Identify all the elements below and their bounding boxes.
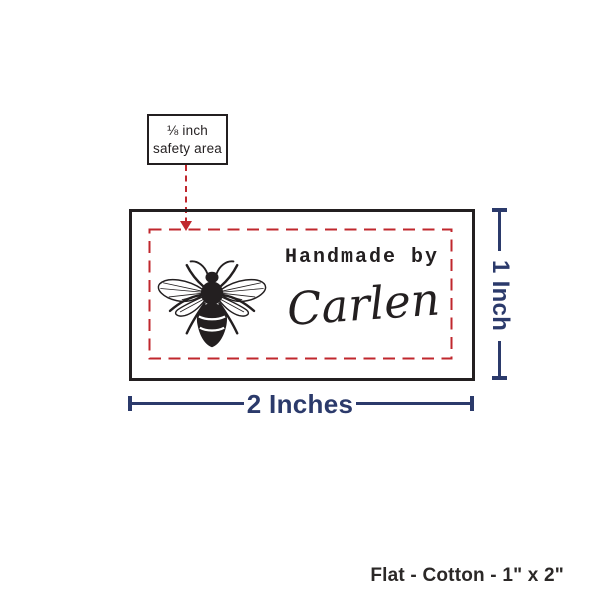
- label-name-text: Carlen: [285, 271, 434, 339]
- callout-text-line1: ⅛ inch: [167, 122, 208, 139]
- height-dimension-text: 1 Inch: [486, 260, 514, 331]
- callout-text-line2: safety area: [153, 140, 222, 157]
- safety-area-callout: ⅛ inch safety area: [147, 114, 228, 165]
- height-dimension-cap-top: [492, 208, 507, 212]
- height-dimension-label: 1 Inch: [483, 251, 517, 341]
- width-dimension-cap-right: [470, 396, 474, 411]
- width-dimension-label: 2 Inches: [244, 386, 356, 422]
- label-brand-text: Handmade by: [272, 246, 452, 269]
- product-spec-text: Flat - Cotton - 1" x 2": [370, 565, 564, 587]
- width-dimension-cap-left: [128, 396, 132, 411]
- label-mockup-canvas: ⅛ inch safety area: [0, 0, 600, 600]
- bee-icon: [156, 256, 268, 349]
- height-dimension-cap-bottom: [492, 376, 507, 380]
